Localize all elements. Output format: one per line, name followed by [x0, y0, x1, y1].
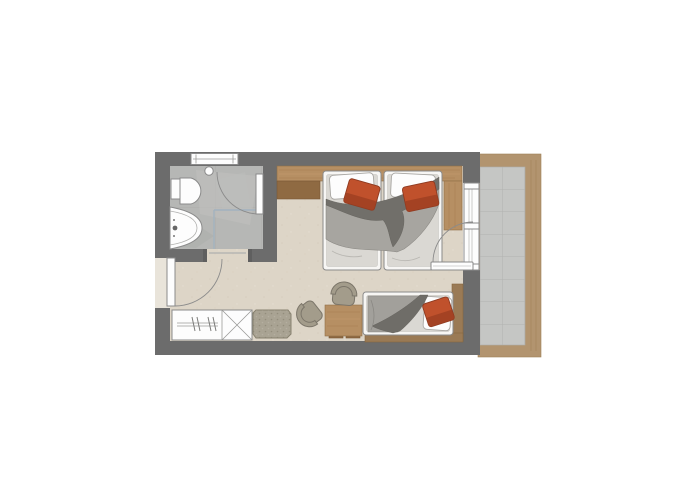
entrance-door-leaf [167, 258, 175, 306]
floor-plan-drawing [0, 0, 700, 500]
balcony-tiles [480, 167, 525, 345]
bench [253, 310, 291, 338]
wall-bathroom-right [263, 166, 277, 262]
nightstand [277, 181, 320, 199]
floor-plan-page [0, 0, 700, 500]
daybed [363, 284, 463, 342]
shower-door-leaf [256, 174, 263, 214]
wardrobe [172, 310, 252, 340]
ceiling-light [205, 167, 213, 175]
wall-bottom [155, 341, 480, 355]
balcony [478, 154, 541, 357]
bathroom-window [191, 154, 238, 165]
desk [325, 305, 362, 338]
wall-bathroom-bottom-right [250, 249, 277, 262]
window-side-shelf [444, 181, 462, 230]
wall-left-upper [155, 152, 170, 258]
daybed-frame-right [452, 284, 463, 341]
balcony-window [464, 183, 479, 270]
wall-right-upper [463, 152, 480, 183]
wall-right-lower [463, 270, 480, 355]
